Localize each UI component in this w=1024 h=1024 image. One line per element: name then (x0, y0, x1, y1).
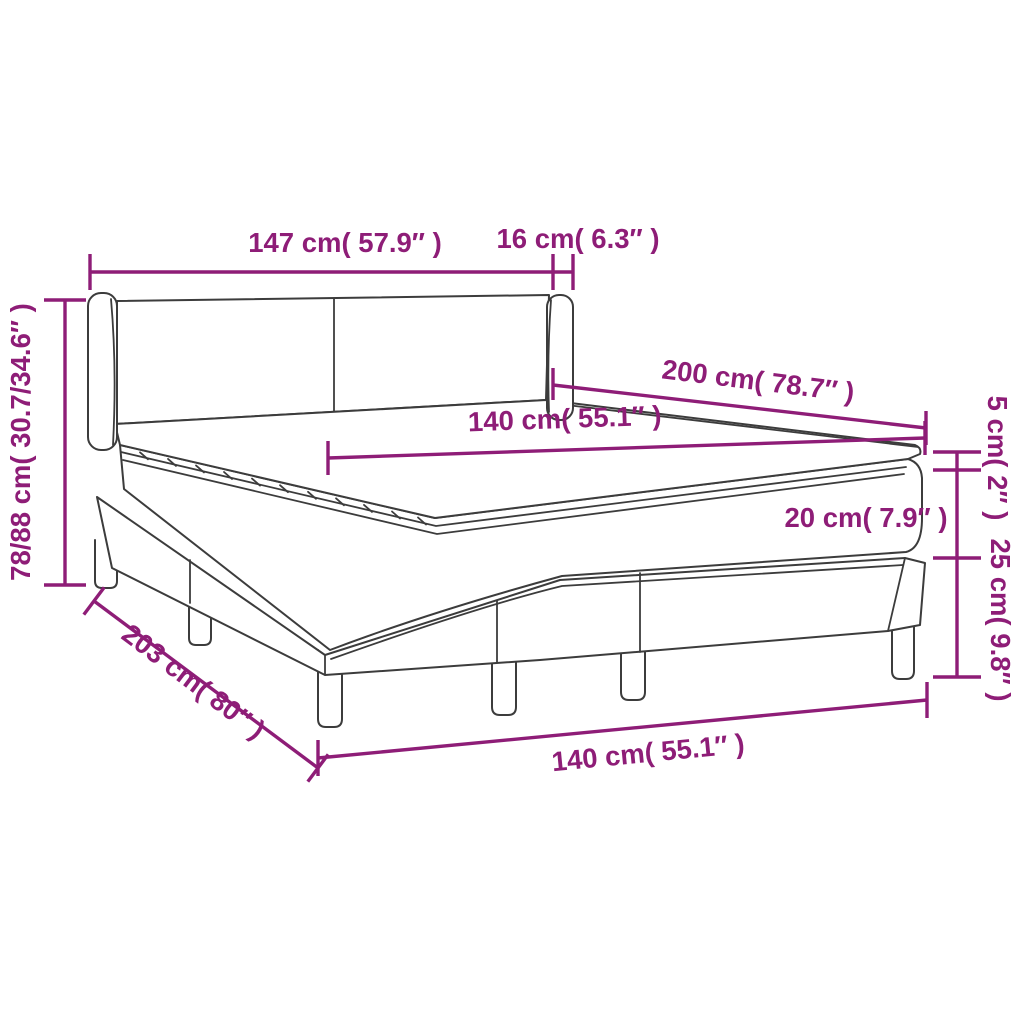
dim-height-stack: 5 cm( 2″ ) 25 cm( 9.8″ ) (933, 396, 1016, 702)
bed-dimension-diagram: 147 cm( 57.9″ ) 16 cm( 6.3″ ) 78/88 cm( … (0, 0, 1024, 1024)
label-base-width: 140 cm( 55.1″ ) (550, 728, 746, 777)
bed-diagram-canvas: 147 cm( 57.9″ ) 16 cm( 6.3″ ) 78/88 cm( … (0, 0, 1024, 1024)
label-total-height: 78/88 cm( 30.7/34.6″ ) (5, 303, 36, 581)
label-topper-height: 5 cm( 2″ ) (982, 396, 1013, 521)
dim-total-height: 78/88 cm( 30.7/34.6″ ) (5, 300, 86, 585)
label-headboard-width: 147 cm( 57.9″ ) (248, 227, 442, 258)
label-mattress-height: 20 cm( 7.9″ ) (785, 502, 948, 533)
label-wing-depth: 16 cm( 6.3″ ) (497, 223, 660, 254)
dim-headboard-width: 147 cm( 57.9″ ) 16 cm( 6.3″ ) (90, 223, 659, 290)
label-base-height: 25 cm( 9.8″ ) (985, 539, 1016, 702)
